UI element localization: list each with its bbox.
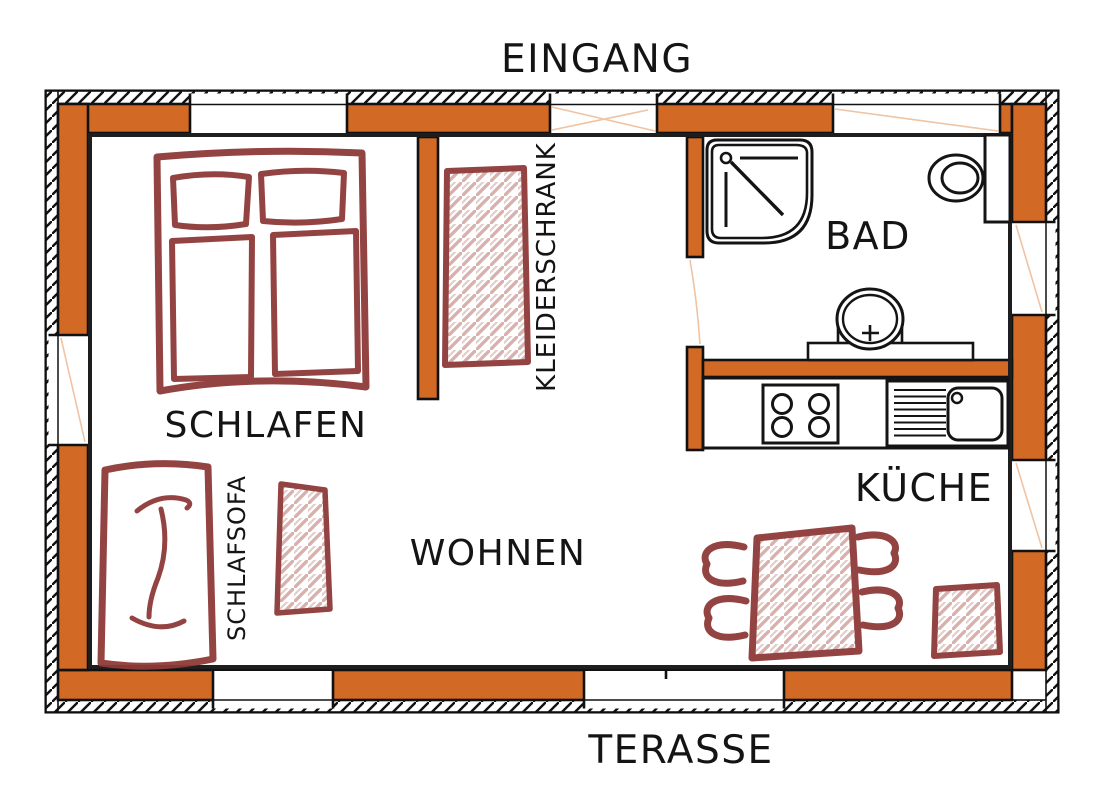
stove [763,385,838,443]
floor-plan: EINGANG TERASSE SCHLAFEN BAD KÜCHE WOHNE… [0,0,1108,802]
label-living: WOHNEN [410,533,587,574]
label-bedroom: SCHLAFEN [165,405,368,446]
label-entrance: EINGANG [501,37,693,82]
label-kitchen: KÜCHE [855,466,993,510]
wall-right [1012,104,1046,670]
window-top-bath [833,94,1000,134]
label-sleeper-sofa: SCHLAFSOFA [223,475,251,641]
wall-bath-west-lower [687,347,703,450]
sink-tap [952,393,962,403]
label-terrace: TERASSE [587,728,773,773]
door-terrace [584,671,784,709]
wall-bath-south [703,360,1012,377]
shower-head [721,153,731,163]
window-right-lower [1012,460,1056,551]
dining-table [752,528,859,658]
floor-plan-page: EINGANG TERASSE SCHLAFEN BAD KÜCHE WOHNE… [0,0,1108,802]
small-rug [934,585,1000,656]
label-wardrobe: KLEIDERSCHRANK [532,142,562,392]
wall-bottom [58,670,1012,700]
window-bottom-left [213,671,333,709]
side-table [277,484,330,613]
window-right-upper [1012,222,1056,315]
shower [707,140,812,243]
kitchen-fixtures [703,378,1008,448]
wall-wardrobe-partition [418,137,438,399]
kitchen-sink [887,381,1008,446]
door-entrance [550,94,657,134]
wardrobe [445,168,528,365]
wall-bath-west-upper [687,137,703,257]
label-bathroom: BAD [825,214,911,258]
window-left [49,335,89,445]
window-top-left [190,94,347,134]
